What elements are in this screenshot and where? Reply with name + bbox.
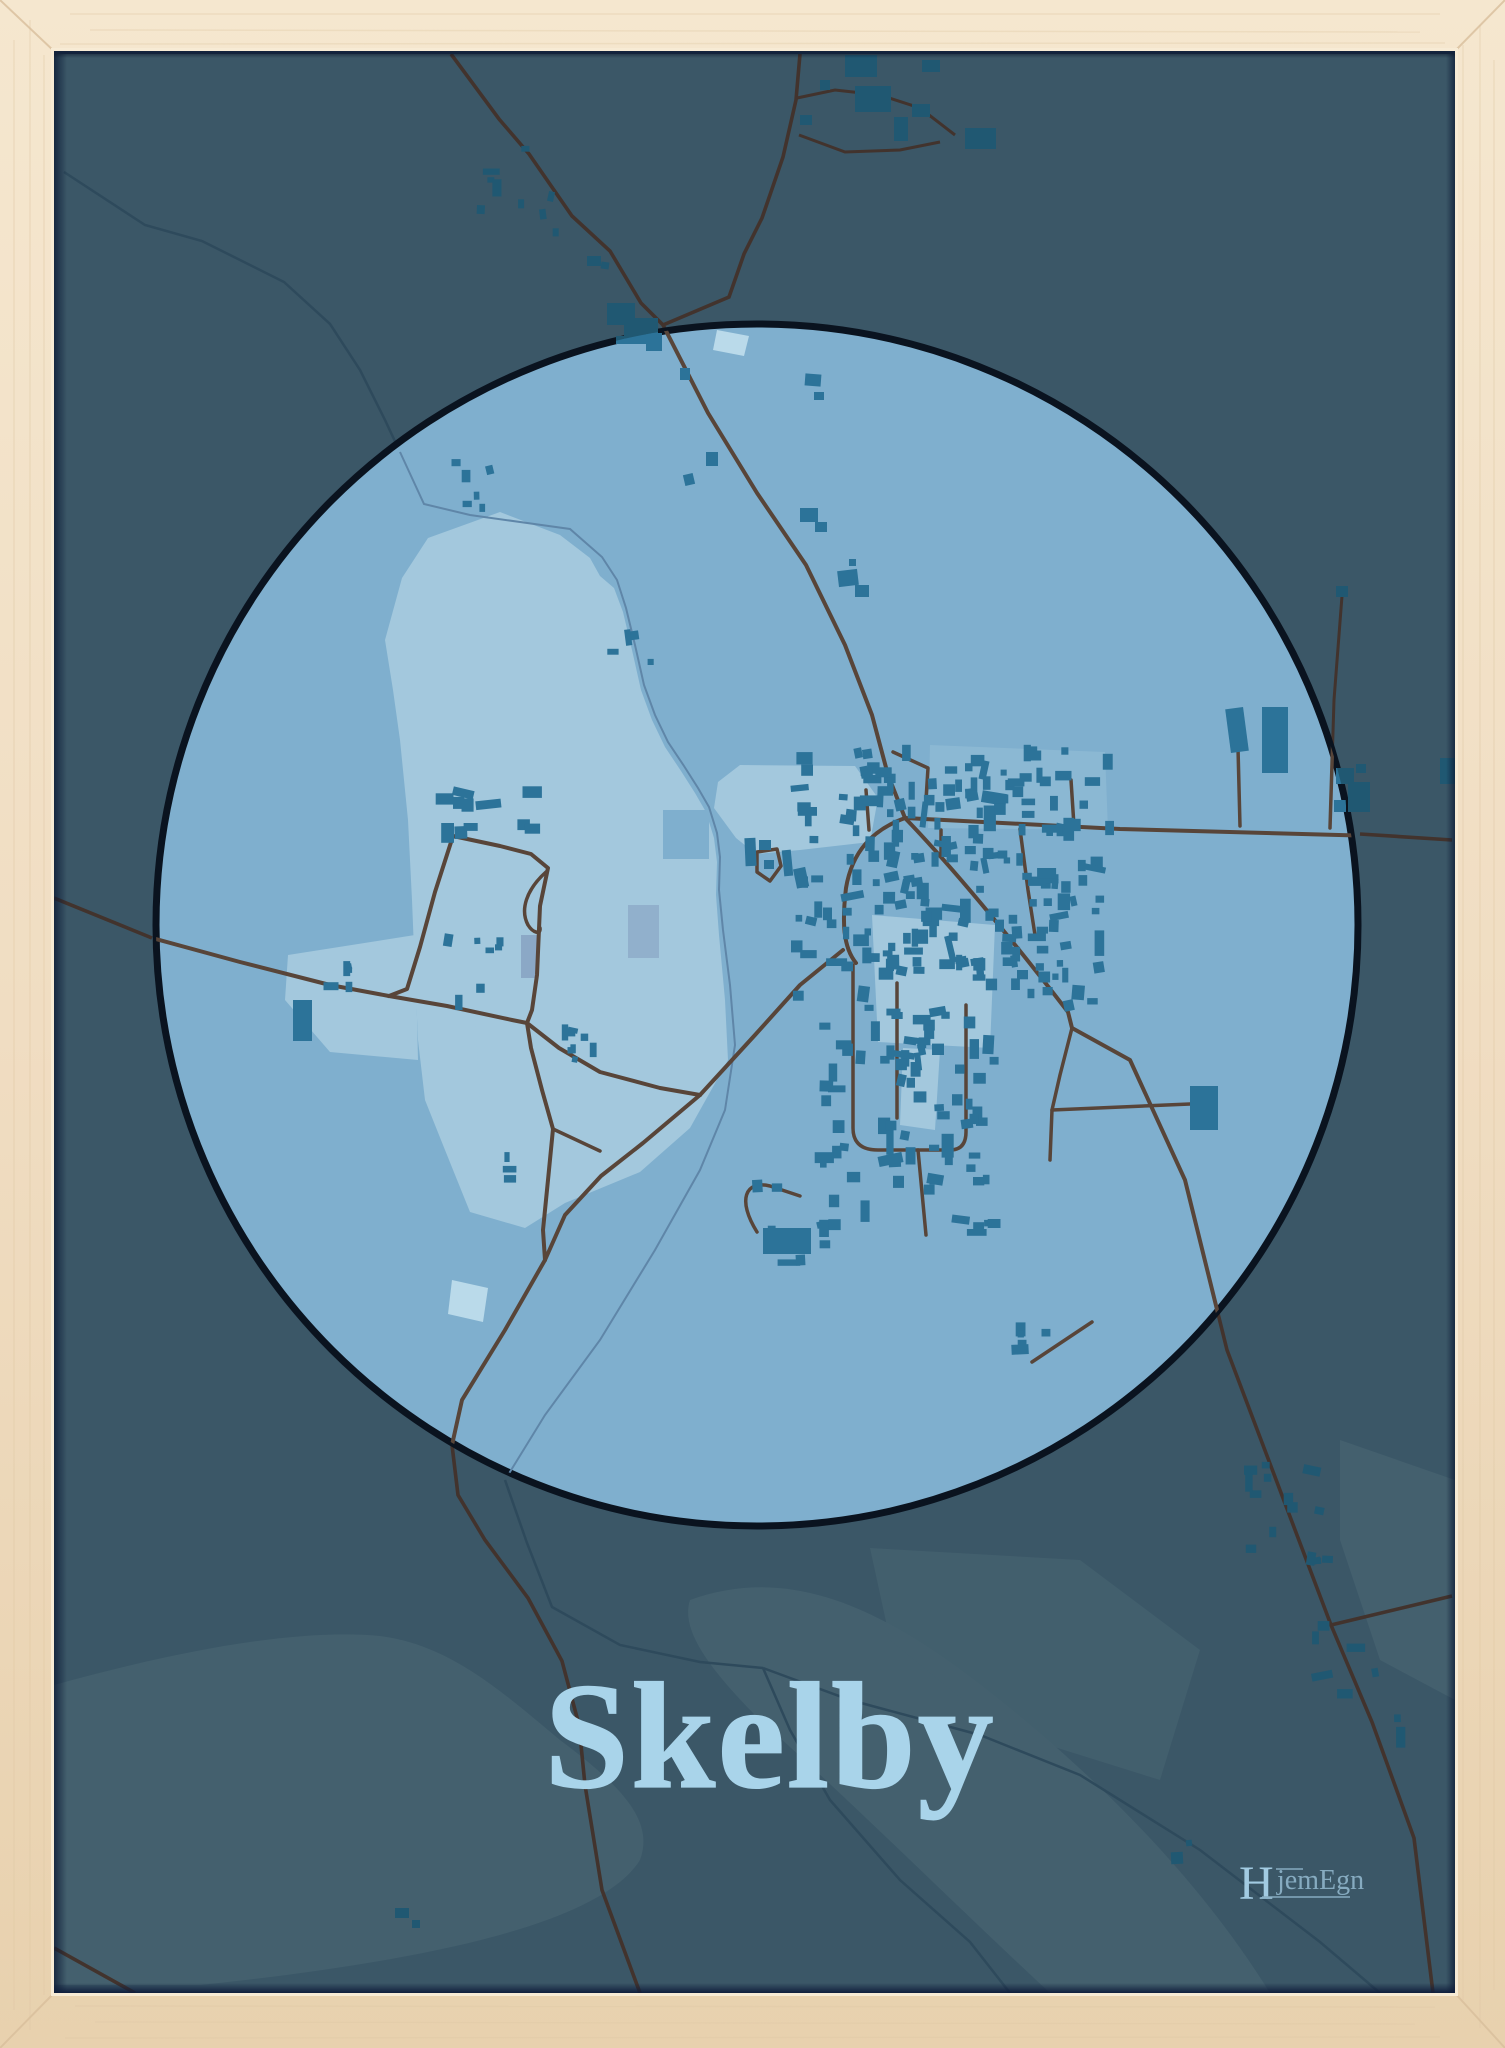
svg-text:Skelby: Skelby [544, 1652, 995, 1820]
svg-text:H: H [1239, 1857, 1274, 1910]
